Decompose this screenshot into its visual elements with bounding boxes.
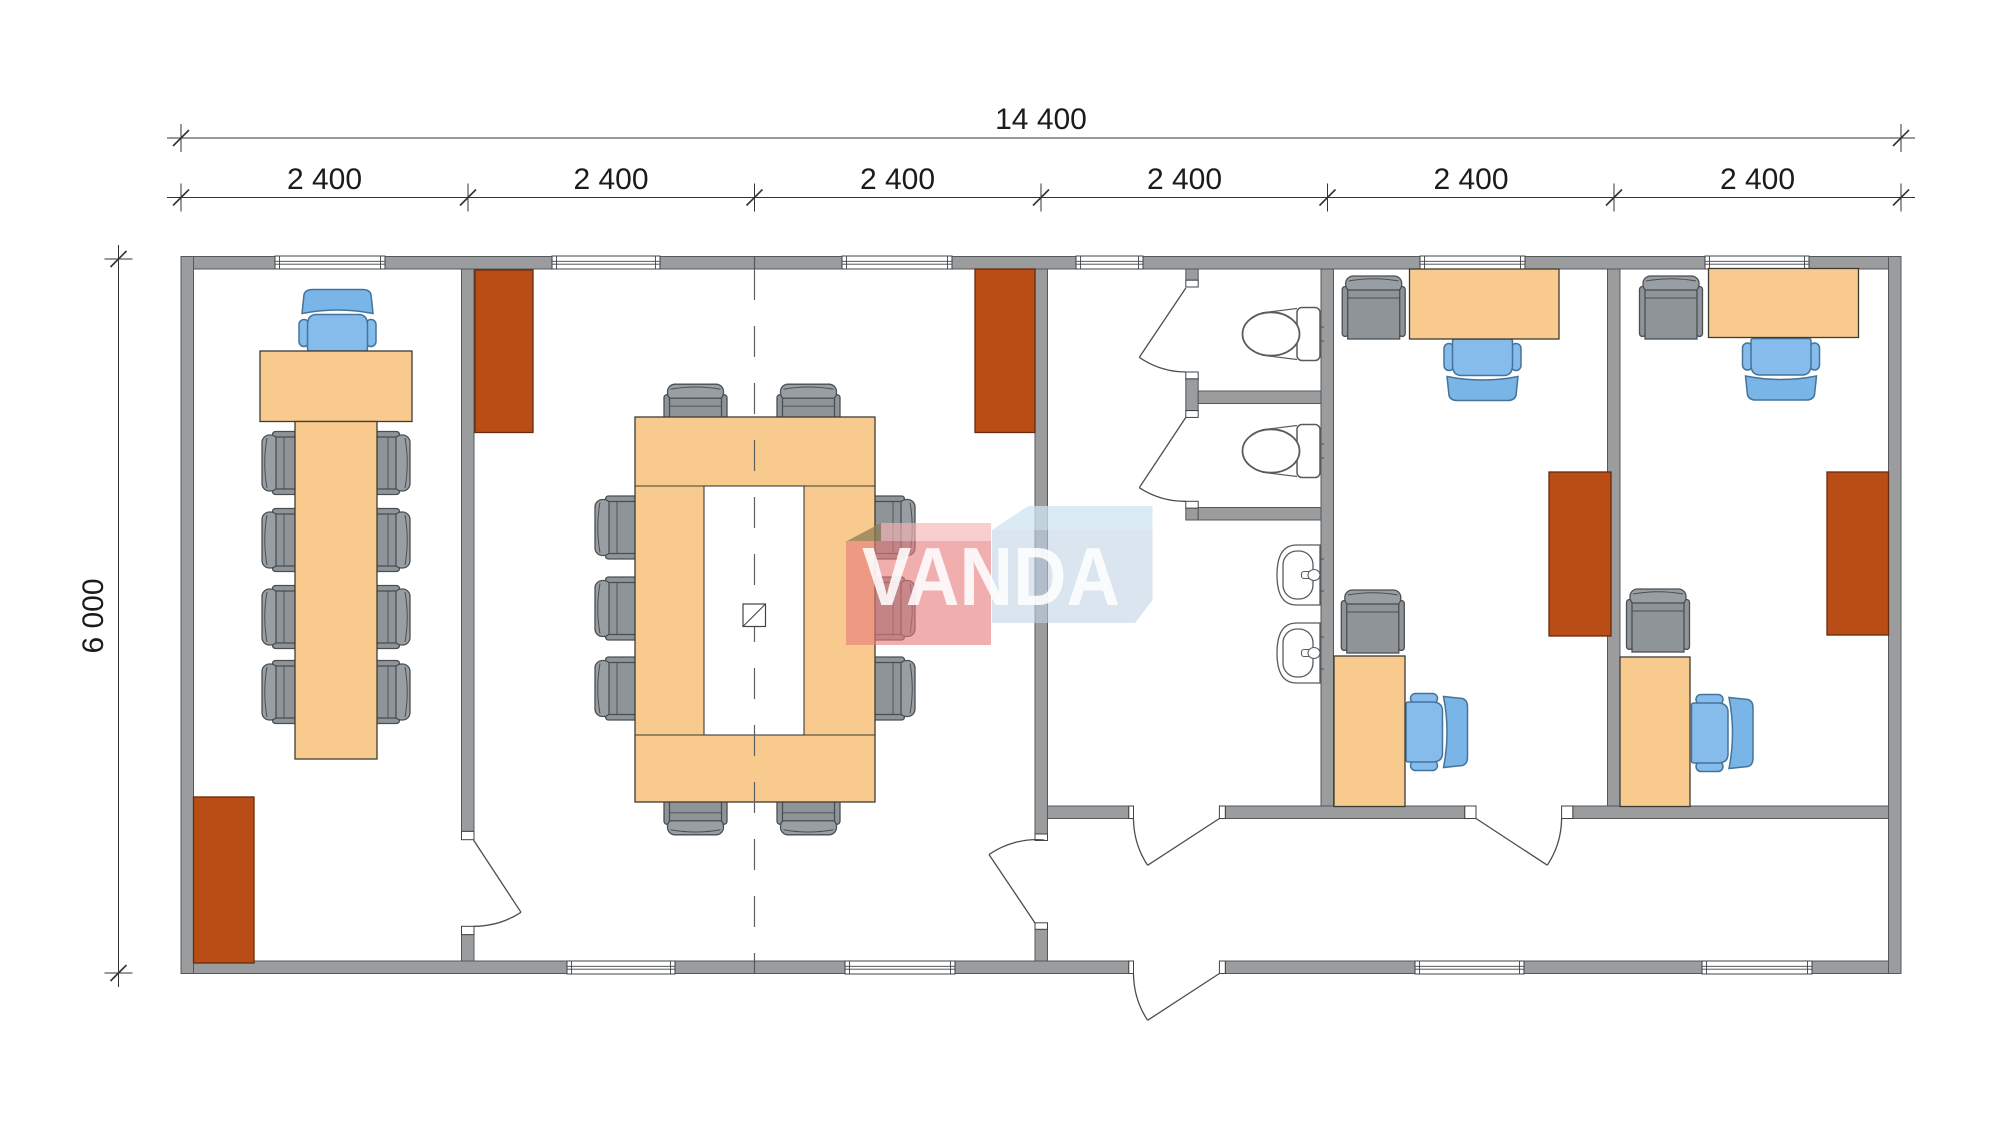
- svg-text:VANDA: VANDA: [862, 530, 1120, 623]
- svg-text:2 400: 2 400: [1433, 163, 1508, 196]
- svg-text:2 400: 2 400: [287, 163, 362, 196]
- svg-text:6 000: 6 000: [77, 578, 110, 653]
- svg-text:2 400: 2 400: [1147, 163, 1222, 196]
- svg-text:2 400: 2 400: [860, 163, 935, 196]
- svg-text:2 400: 2 400: [573, 163, 648, 196]
- svg-text:14 400: 14 400: [995, 103, 1087, 136]
- svg-text:2 400: 2 400: [1720, 163, 1795, 196]
